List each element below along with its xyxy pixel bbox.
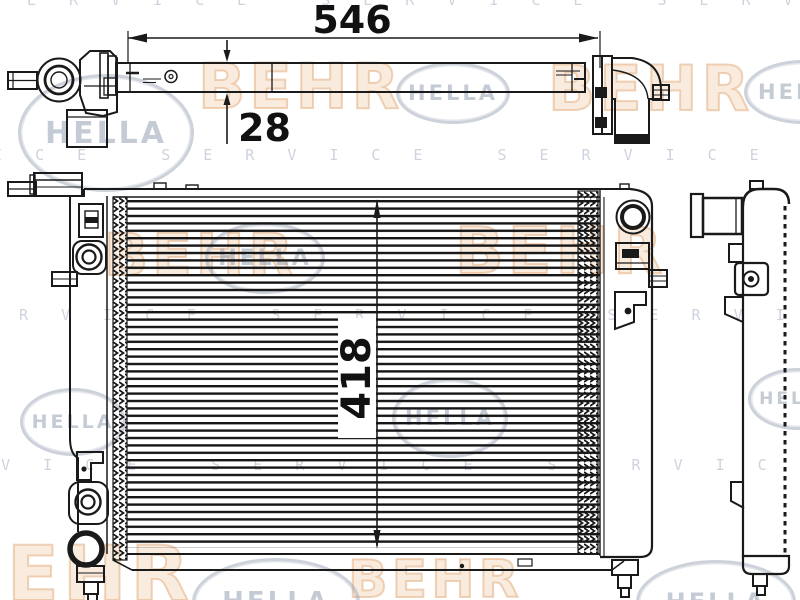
dimension-28-label: 28 [238,106,291,150]
outlet-ring [70,533,102,565]
side-view-drawing [691,181,789,595]
dimension-28: 28 [224,40,291,150]
stamp-icon [165,71,177,83]
top-view-drawing [8,51,669,147]
core-left-header [113,197,127,560]
dimension-546: 546 [128,0,600,68]
radiator-technical-drawing: SERVICE SERVICE SERVICE SERVICE SERVICE … [0,0,800,600]
dimension-418-label: 418 [334,336,380,420]
technical-drawing-svg: 546 28 [0,0,800,600]
dimension-546-label: 546 [312,0,391,42]
